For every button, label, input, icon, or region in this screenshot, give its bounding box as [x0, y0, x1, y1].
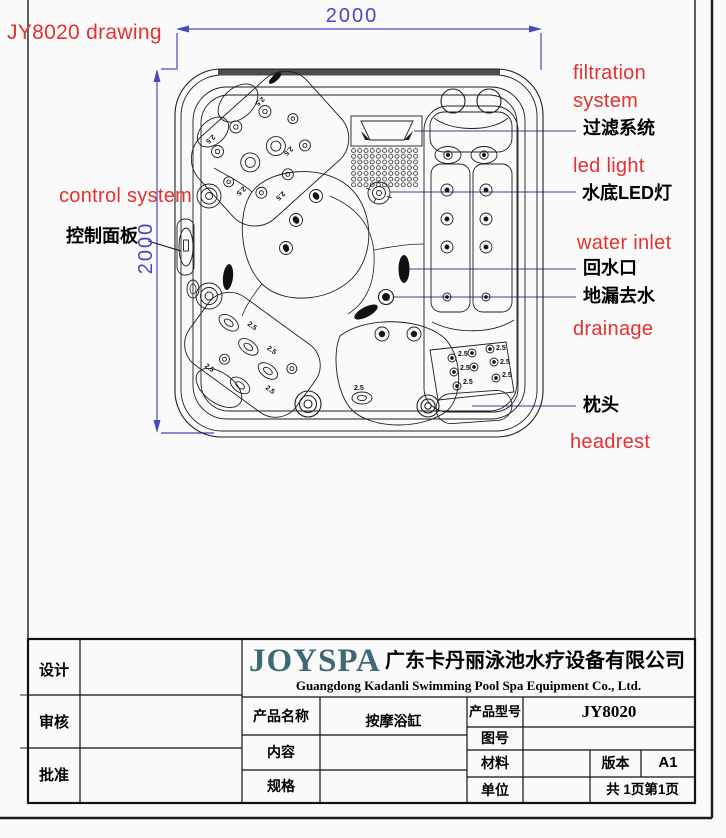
unit-label: 单位: [467, 783, 523, 797]
jet-size-labels: 2.5 2.5 2.5 2.5 2.5 2.5 2.5 2.5 2.5 2.5 …: [195, 91, 512, 410]
top-left-lounger: [179, 59, 361, 238]
label-headrest-cn: 枕头: [583, 396, 619, 414]
cluster-jets: [448, 345, 500, 390]
bench-jets: [441, 184, 492, 301]
svg-text:2.5: 2.5: [274, 190, 286, 202]
design-label: 设计: [28, 663, 80, 678]
filter-assembly: [351, 116, 422, 187]
model-label: 产品型号: [467, 705, 523, 718]
product-name-value: 按摩浴缸: [320, 714, 467, 728]
review-label: 审核: [28, 715, 80, 730]
svg-text:2.5: 2.5: [246, 321, 258, 332]
footwell: [330, 196, 424, 314]
version-label: 版本: [590, 756, 641, 770]
svg-text:2.5: 2.5: [235, 185, 247, 197]
label-drainage-en: drainage: [573, 319, 653, 339]
svg-text:2.5: 2.5: [460, 365, 470, 372]
label-water-inlet-en: water inlet: [577, 233, 671, 253]
label-filtration-en-2: system: [573, 91, 638, 111]
label-control-panel-cn: 控制面板: [66, 227, 138, 245]
svg-text:2.5: 2.5: [458, 351, 468, 358]
content-label: 内容: [242, 745, 320, 759]
fittings: [222, 255, 439, 417]
spec-label: 规格: [242, 779, 320, 793]
version-value: A1: [641, 755, 695, 770]
rim-circles: [441, 89, 501, 113]
svg-text:2.5: 2.5: [463, 379, 473, 386]
floor-drain: [379, 290, 394, 305]
label-headrest-en: headrest: [570, 432, 650, 452]
svg-text:2.5: 2.5: [502, 372, 512, 379]
svg-text:2.5: 2.5: [265, 345, 277, 356]
water-inlet-fitting: [399, 255, 410, 283]
svg-text:2.5: 2.5: [282, 145, 294, 157]
bottom-left-lounger: [174, 282, 330, 428]
label-control-system-en: control system: [59, 186, 192, 206]
svg-text:2.5: 2.5: [500, 359, 510, 366]
label-led-cn: 水底LED灯: [582, 184, 672, 202]
dim-left-value: 2000: [136, 208, 156, 288]
company-name-en: Guangdong Kadanli Swimming Pool Spa Equi…: [242, 679, 695, 692]
spa-tub: 2.5 2.5 2.5 2.5 2.5 2.5 2.5 2.5 2.5 2.5 …: [174, 59, 543, 437]
model-value: JY8020: [523, 703, 695, 720]
label-filtration-en-1: filtration: [573, 63, 646, 83]
control-panel: [177, 219, 199, 298]
svg-text:2.5: 2.5: [264, 385, 276, 396]
drawing-title: JY8020 drawing: [7, 22, 162, 43]
brand-logo: JOYSPA: [249, 645, 381, 678]
dim-top-value: 2000: [312, 6, 392, 26]
label-drain-cn: 地漏去水: [583, 287, 655, 305]
svg-text:2.5: 2.5: [496, 345, 506, 352]
svg-text:2.5: 2.5: [354, 385, 364, 392]
approve-label: 批准: [28, 768, 80, 783]
company-name-cn: 广东卡丹丽泳池水疗设备有限公司: [385, 651, 685, 671]
product-name-label: 产品名称: [242, 709, 320, 723]
label-led-en: led light: [573, 156, 645, 176]
svg-text:2.5: 2.5: [204, 133, 216, 145]
label-filtration-cn: 过滤系统: [583, 119, 655, 137]
bottom-center-seat: [336, 322, 459, 425]
drawing-no-label: 图号: [467, 731, 523, 745]
pages-value: 共 1页第1页: [590, 783, 695, 797]
material-label: 材料: [467, 756, 523, 770]
engineering-drawing: { "drawing": { "title": "JY8020 drawing"…: [0, 0, 726, 838]
label-water-inlet-cn: 回水口: [583, 259, 637, 277]
